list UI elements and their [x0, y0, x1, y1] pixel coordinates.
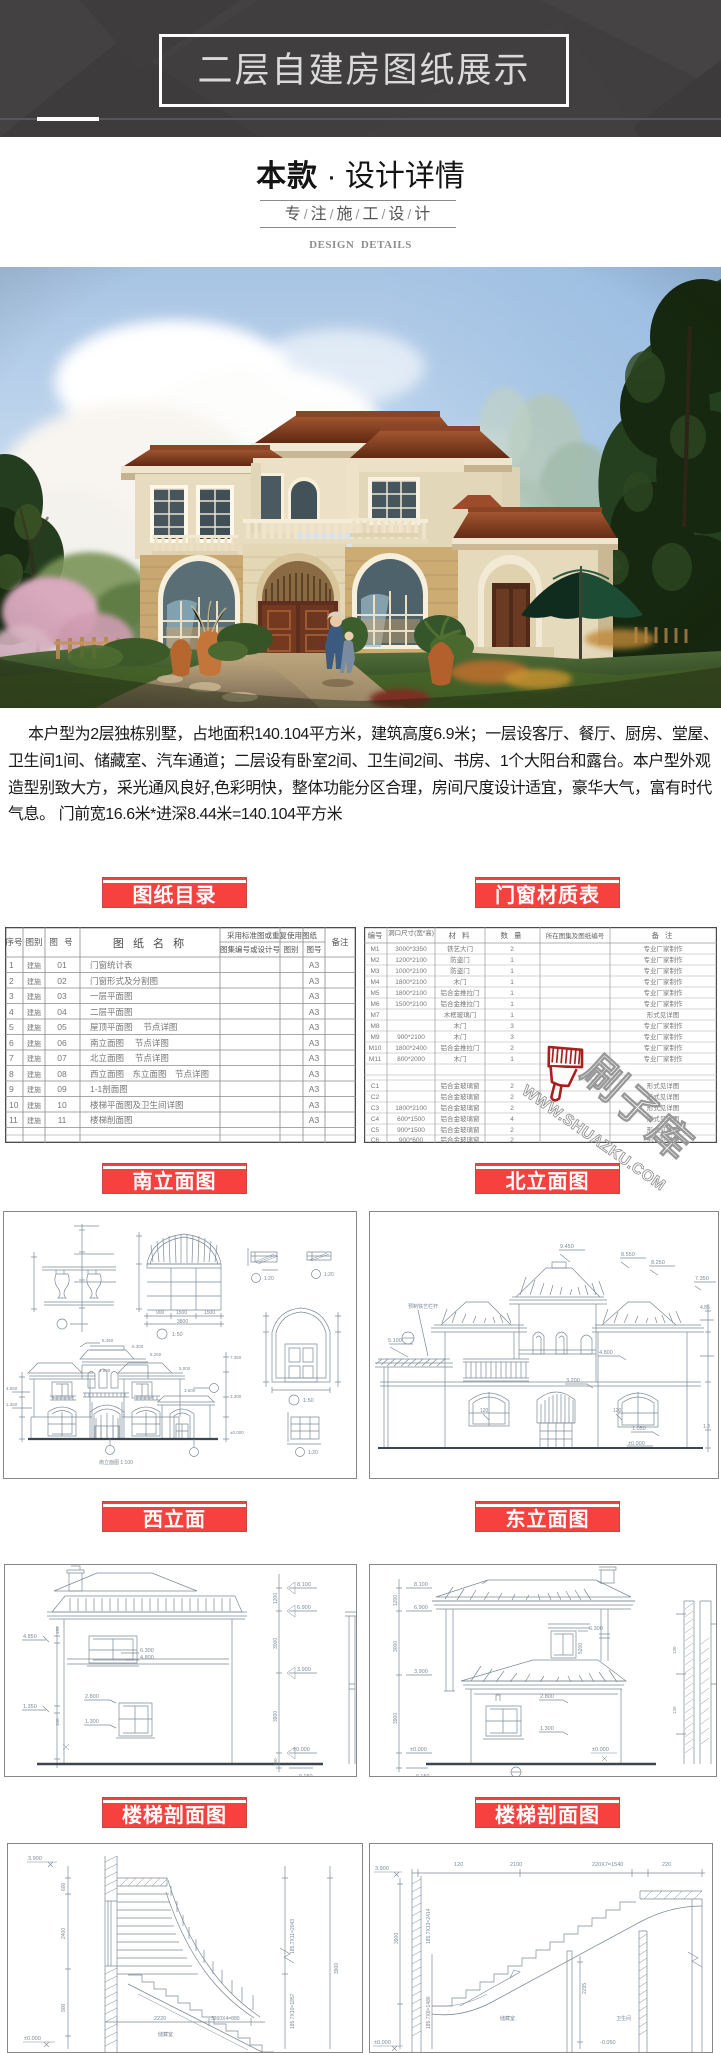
- svg-text:3900: 3900: [334, 1963, 340, 1974]
- svg-text:±0.000: ±0.000: [410, 1747, 427, 1753]
- svg-text:120: 120: [672, 1646, 677, 1654]
- svg-text:3800: 3800: [177, 1319, 188, 1325]
- svg-text:建施: 建施: [27, 1070, 41, 1079]
- svg-text:6: 6: [9, 1038, 14, 1048]
- svg-text:±0.000: ±0.000: [230, 1430, 244, 1435]
- svg-text:铝合金玻璃窗: 铝合金玻璃窗: [441, 1135, 480, 1143]
- svg-text:1500: 1500: [176, 1310, 187, 1316]
- svg-text:专业厂家制作: 专业厂家制作: [644, 966, 684, 975]
- svg-text:120: 120: [454, 1862, 463, 1868]
- svg-text:900: 900: [61, 2003, 67, 2012]
- svg-text:3.600: 3.600: [184, 1388, 196, 1393]
- svg-text:铝合金玻璃窗: 铝合金玻璃窗: [441, 1092, 480, 1101]
- svg-text:1: 1: [510, 1056, 514, 1063]
- svg-text:预制铁艺栏杆: 预制铁艺栏杆: [408, 1303, 438, 1310]
- svg-text:铝合金玻璃窗: 铝合金玻璃窗: [441, 1081, 480, 1090]
- svg-text:1: 1: [510, 979, 514, 986]
- svg-text:西立面图 东立面图 节点详图: 西立面图 东立面图 节点详图: [90, 1069, 209, 1079]
- svg-text:形式见详图: 形式见详图: [647, 1081, 680, 1090]
- svg-text:8.100: 8.100: [414, 1582, 428, 1588]
- svg-text:形式见详图: 形式见详图: [647, 1114, 680, 1123]
- svg-text:02: 02: [57, 976, 67, 986]
- svg-text:A3: A3: [309, 1038, 320, 1048]
- svg-text:600*1500: 600*1500: [397, 1116, 425, 1123]
- svg-text:C1: C1: [371, 1083, 380, 1090]
- svg-text:8: 8: [9, 1069, 14, 1079]
- svg-text:4.850: 4.850: [6, 1386, 18, 1391]
- svg-text:专业厂家制作: 专业厂家制作: [644, 955, 684, 964]
- svg-text:11: 11: [9, 1115, 18, 1125]
- svg-text:1.050: 1.050: [632, 1426, 646, 1432]
- svg-text:7: 7: [9, 1053, 14, 1063]
- svg-text:2: 2: [510, 1127, 514, 1134]
- svg-text:8.100: 8.100: [297, 1582, 311, 1588]
- svg-text:专业厂家制作: 专业厂家制作: [644, 988, 684, 997]
- svg-text:3.200: 3.200: [566, 1378, 580, 1384]
- svg-text:07: 07: [57, 1053, 67, 1063]
- svg-text:铁艺大门: 铁艺大门: [447, 944, 473, 953]
- svg-text:100: 100: [55, 1718, 60, 1726]
- svg-text:2.800: 2.800: [85, 1694, 99, 1700]
- svg-text:8.250: 8.250: [651, 1260, 665, 1266]
- svg-text:1800*2100: 1800*2100: [395, 1105, 427, 1112]
- svg-text:M1: M1: [370, 946, 379, 953]
- svg-text:A3: A3: [309, 991, 320, 1001]
- svg-text:7.350: 7.350: [695, 1276, 709, 1282]
- svg-text:8.550: 8.550: [621, 1252, 635, 1258]
- svg-text:C6: C6: [371, 1137, 380, 1143]
- svg-text:04: 04: [57, 1007, 67, 1017]
- svg-text:-0.050: -0.050: [600, 2040, 616, 2046]
- svg-text:11: 11: [58, 1115, 67, 1125]
- svg-text:专业厂家制作: 专业厂家制作: [644, 999, 684, 1008]
- svg-text:M4: M4: [370, 979, 379, 986]
- svg-text:2: 2: [510, 1105, 514, 1112]
- svg-text:1200: 1200: [273, 1593, 279, 1604]
- svg-text:10: 10: [9, 1100, 19, 1110]
- svg-text:120: 120: [480, 1408, 489, 1414]
- svg-text:1.350: 1.350: [6, 1402, 18, 1407]
- svg-text:A3: A3: [309, 976, 320, 986]
- svg-text:1800*2400: 1800*2400: [395, 1045, 427, 1052]
- svg-text:防盗门: 防盗门: [450, 955, 470, 964]
- svg-text:3.300: 3.300: [230, 1394, 242, 1399]
- svg-text:800*2000: 800*2000: [397, 1056, 425, 1063]
- svg-text:4.800: 4.800: [140, 1655, 154, 1661]
- svg-text:6.450: 6.450: [102, 1338, 114, 1343]
- svg-text:材 料: 材 料: [448, 930, 471, 940]
- svg-text:3.900: 3.900: [297, 1667, 311, 1673]
- svg-text:图别: 图别: [284, 945, 299, 954]
- svg-text:1800*2100: 1800*2100: [395, 979, 427, 986]
- svg-text:二层平面图: 二层平面图: [90, 1007, 133, 1017]
- svg-text:1.300: 1.300: [85, 1719, 99, 1725]
- svg-text:形式见详图: 形式见详图: [647, 1135, 680, 1143]
- svg-text:A3: A3: [309, 1084, 320, 1094]
- svg-text:卫生间: 卫生间: [616, 2015, 631, 2022]
- svg-text:185.7X8=1486: 185.7X8=1486: [426, 1996, 432, 2029]
- svg-text:北立面图 节点详图: 北立面图 节点详图: [90, 1053, 169, 1063]
- svg-text:±0.000: ±0.000: [24, 2036, 41, 2042]
- svg-text:2400: 2400: [61, 1928, 67, 1939]
- svg-text:4.85: 4.85: [700, 1305, 710, 1311]
- svg-text:6.250: 6.250: [150, 1352, 162, 1357]
- svg-text:备 注: 备 注: [651, 930, 674, 940]
- svg-text:3: 3: [9, 991, 14, 1001]
- svg-text:3: 3: [510, 1023, 514, 1030]
- svg-text:1.350: 1.350: [23, 1704, 37, 1710]
- svg-text:建施: 建施: [27, 977, 41, 986]
- svg-text:-0.150: -0.150: [414, 1774, 430, 1776]
- svg-text:图号: 图号: [307, 945, 322, 954]
- svg-text:铝合金玻璃窗: 铝合金玻璃窗: [441, 1114, 480, 1123]
- svg-text:M6: M6: [370, 1001, 379, 1008]
- svg-text:M2: M2: [370, 957, 379, 964]
- svg-text:3900: 3900: [394, 1933, 400, 1944]
- svg-text:5.100: 5.100: [388, 1338, 402, 1344]
- svg-text:2.800: 2.800: [540, 1694, 554, 1700]
- svg-text:专业厂家制作: 专业厂家制作: [644, 1043, 684, 1052]
- svg-text:建施: 建施: [27, 1023, 41, 1032]
- svg-text:1.300: 1.300: [540, 1726, 554, 1732]
- svg-text:900*1500: 900*1500: [397, 1127, 425, 1134]
- svg-text:建施: 建施: [27, 1101, 41, 1110]
- svg-text:1-1剖面图: 1-1剖面图: [90, 1084, 128, 1094]
- svg-text:10: 10: [57, 1100, 67, 1110]
- svg-text:5200: 5200: [578, 1643, 584, 1654]
- svg-text:9.450: 9.450: [560, 1244, 574, 1250]
- svg-text:洞口尺寸(宽*高): 洞口尺寸(宽*高): [388, 928, 434, 937]
- svg-text:03: 03: [57, 991, 67, 1001]
- svg-text:4: 4: [9, 1007, 14, 1017]
- svg-text:6.300: 6.300: [132, 1344, 144, 1349]
- svg-text:1: 1: [510, 1001, 514, 1008]
- svg-text:1:20: 1:20: [308, 1450, 318, 1456]
- svg-text:屋顶平面图 节点详图: 屋顶平面图 节点详图: [90, 1022, 177, 1032]
- svg-text:木门: 木门: [454, 977, 467, 986]
- svg-text:建施: 建施: [27, 1054, 41, 1063]
- svg-text:1:50: 1:50: [172, 1332, 183, 1338]
- svg-text:4.800: 4.800: [599, 1350, 613, 1356]
- svg-text:150: 150: [55, 1626, 60, 1634]
- svg-text:2: 2: [510, 1137, 514, 1143]
- svg-text:铝合金推拉门: 铝合金推拉门: [441, 1043, 480, 1052]
- svg-text:1200: 1200: [393, 1595, 399, 1606]
- svg-text:铝合金玻璃窗: 铝合金玻璃窗: [441, 1125, 480, 1134]
- svg-text:M7: M7: [370, 1012, 379, 1019]
- svg-text:±0.000: ±0.000: [293, 1747, 310, 1753]
- svg-text:2: 2: [510, 946, 514, 953]
- svg-text:楼梯平面图及卫生间详图: 楼梯平面图及卫生间详图: [90, 1100, 184, 1110]
- svg-text:储藏室: 储藏室: [500, 2015, 515, 2022]
- svg-text:南立面图 1:100: 南立面图 1:100: [99, 1459, 133, 1466]
- svg-text:序号: 序号: [5, 937, 22, 947]
- svg-text:A3: A3: [309, 1053, 320, 1063]
- svg-text:建施: 建施: [27, 1039, 41, 1048]
- svg-text:A3: A3: [309, 1115, 320, 1125]
- svg-text:1: 1: [510, 968, 514, 975]
- svg-text:M8: M8: [370, 1023, 379, 1030]
- svg-text:1200*2100: 1200*2100: [395, 957, 427, 964]
- svg-text:1: 1: [510, 1012, 514, 1019]
- svg-text:数 量: 数 量: [500, 930, 523, 940]
- svg-text:储藏室: 储藏室: [158, 2031, 173, 2038]
- svg-text:M5: M5: [370, 990, 379, 997]
- svg-text:1000*2100: 1000*2100: [395, 968, 427, 975]
- svg-text:建施: 建施: [27, 1116, 41, 1125]
- svg-text:南立面图 节点详图: 南立面图 节点详图: [90, 1038, 169, 1048]
- svg-text:1.3: 1.3: [703, 1424, 710, 1430]
- svg-text:1:50: 1:50: [303, 1398, 314, 1404]
- svg-text:C5: C5: [371, 1127, 380, 1134]
- svg-text:±0.000: ±0.000: [592, 1747, 609, 1753]
- svg-text:防盗门: 防盗门: [450, 966, 470, 975]
- svg-text:建施: 建施: [27, 992, 41, 1001]
- svg-text:1:20: 1:20: [324, 1272, 334, 1278]
- svg-text:3000*3350: 3000*3350: [395, 946, 427, 953]
- svg-text:编号: 编号: [368, 930, 383, 940]
- svg-text:7.350: 7.350: [230, 1355, 242, 1360]
- svg-text:3900: 3900: [273, 1711, 279, 1722]
- svg-text:专业厂家制作: 专业厂家制作: [644, 1054, 684, 1063]
- svg-text:900*600: 900*600: [399, 1137, 424, 1143]
- svg-text:6.300: 6.300: [140, 1648, 154, 1654]
- svg-text:图 号: 图 号: [49, 937, 74, 947]
- svg-text:所在图集及图纸编号: 所在图集及图纸编号: [546, 931, 605, 940]
- svg-text:-0.150: -0.150: [297, 1774, 313, 1776]
- svg-text:图集编号或设计号: 图集编号或设计号: [220, 944, 280, 954]
- svg-text:木门: 木门: [454, 1054, 467, 1063]
- svg-text:形式见详图: 形式见详图: [647, 1010, 680, 1019]
- svg-text:A3: A3: [309, 1069, 320, 1079]
- svg-text:形式见详图: 形式见详图: [647, 1092, 680, 1101]
- svg-text:185.7X10=1857: 185.7X10=1857: [290, 1993, 296, 2029]
- svg-text:08: 08: [57, 1069, 67, 1079]
- svg-text:120: 120: [672, 1706, 677, 1714]
- svg-text:220X7=1540: 220X7=1540: [592, 1862, 623, 1868]
- svg-text:形式见详图: 形式见详图: [647, 1125, 680, 1134]
- svg-text:形式见详图: 形式见详图: [647, 1103, 680, 1112]
- svg-text:3: 3: [510, 1034, 514, 1041]
- svg-text:1500: 1500: [204, 1310, 215, 1316]
- svg-text:M3: M3: [370, 968, 379, 975]
- svg-text:木门: 木门: [454, 1032, 467, 1041]
- svg-text:采用标准图或重复使用图纸: 采用标准图或重复使用图纸: [227, 930, 317, 940]
- svg-text:木框玻璃门: 木框玻璃门: [444, 1010, 477, 1019]
- svg-text:1: 1: [510, 990, 514, 997]
- svg-text:C3: C3: [371, 1105, 380, 1112]
- svg-text:1:20: 1:20: [264, 1276, 274, 1282]
- svg-text:一层平面图: 一层平面图: [90, 991, 133, 1001]
- svg-text:05: 05: [57, 1022, 67, 1032]
- svg-text:9: 9: [9, 1084, 14, 1094]
- svg-text:5: 5: [9, 1022, 14, 1032]
- svg-text:C4: C4: [371, 1116, 380, 1123]
- svg-text:±0.000: ±0.000: [374, 2040, 391, 2046]
- svg-text:2: 2: [510, 1094, 514, 1101]
- svg-text:2: 2: [9, 976, 14, 986]
- svg-text:3000: 3000: [393, 1641, 399, 1652]
- svg-text:4.850: 4.850: [23, 1634, 37, 1640]
- svg-text:1500*2100: 1500*2100: [395, 1001, 427, 1008]
- svg-text:1: 1: [9, 960, 14, 970]
- svg-text:4: 4: [510, 1116, 514, 1123]
- svg-text:5.000: 5.000: [179, 1366, 191, 1371]
- svg-text:建施: 建施: [27, 961, 41, 970]
- svg-text:专业厂家制作: 专业厂家制作: [644, 944, 684, 953]
- svg-text:150: 150: [273, 1758, 278, 1766]
- svg-text:木门: 木门: [454, 1021, 467, 1030]
- svg-text:3000: 3000: [273, 1638, 279, 1649]
- svg-text:备注: 备注: [331, 937, 349, 947]
- svg-text:4.500: 4.500: [99, 1368, 111, 1373]
- svg-text:600: 600: [61, 1882, 67, 1891]
- svg-text:1800*2100: 1800*2100: [395, 990, 427, 997]
- svg-text:1: 1: [510, 957, 514, 964]
- svg-text:185.7X11=2043: 185.7X11=2043: [290, 1919, 296, 1954]
- svg-text:专业厂家制作: 专业厂家制作: [644, 1032, 684, 1041]
- svg-text:185.7X13=2414: 185.7X13=2414: [426, 1908, 432, 1944]
- svg-text:专业厂家制作: 专业厂家制作: [644, 977, 684, 986]
- svg-text:门窗统计表: 门窗统计表: [90, 960, 133, 970]
- svg-text:3900: 3900: [393, 1713, 399, 1724]
- svg-text:铝合金推拉门: 铝合金推拉门: [441, 988, 480, 997]
- svg-text:门窗形式及分割图: 门窗形式及分割图: [90, 976, 158, 986]
- svg-text:3.900: 3.900: [375, 1866, 389, 1872]
- svg-text:6.900: 6.900: [297, 1605, 311, 1611]
- svg-text:图 纸 名 称: 图 纸 名 称: [113, 936, 187, 950]
- svg-text:3.900: 3.900: [28, 1856, 42, 1862]
- svg-text:120: 120: [613, 1408, 622, 1414]
- svg-text:3200X4=880: 3200X4=880: [211, 2016, 240, 2022]
- svg-text:铝合金推拉门: 铝合金推拉门: [441, 999, 480, 1008]
- svg-text:2100: 2100: [510, 1862, 522, 1868]
- svg-text:3.900: 3.900: [414, 1669, 428, 1675]
- svg-text:楼梯削面图: 楼梯削面图: [90, 1115, 133, 1125]
- svg-text:2220: 2220: [154, 2016, 166, 2022]
- svg-text:A3: A3: [309, 960, 320, 970]
- svg-text:2: 2: [510, 1045, 514, 1052]
- svg-text:2295: 2295: [582, 1983, 588, 1994]
- svg-text:M11: M11: [369, 1056, 382, 1063]
- svg-text:M10: M10: [369, 1045, 382, 1052]
- svg-text:C2: C2: [371, 1094, 380, 1101]
- svg-text:220: 220: [662, 1862, 671, 1868]
- svg-text:2: 2: [510, 1083, 514, 1090]
- svg-text:09: 09: [57, 1084, 67, 1094]
- svg-text:900*2100: 900*2100: [397, 1034, 425, 1041]
- svg-text:A3: A3: [309, 1022, 320, 1032]
- svg-text:图别: 图别: [25, 937, 42, 947]
- svg-text:M9: M9: [370, 1034, 379, 1041]
- svg-text:建施: 建施: [27, 1008, 41, 1017]
- svg-text:A3: A3: [309, 1100, 320, 1110]
- svg-text:06: 06: [57, 1038, 67, 1048]
- svg-text:A3: A3: [309, 1007, 320, 1017]
- svg-text:铝合金玻璃窗: 铝合金玻璃窗: [441, 1103, 480, 1112]
- svg-text:900: 900: [156, 1310, 165, 1316]
- svg-text:6.900: 6.900: [414, 1605, 428, 1611]
- svg-text:建施: 建施: [27, 1085, 41, 1094]
- svg-text:专业厂家制作: 专业厂家制作: [644, 1021, 684, 1030]
- svg-text:01: 01: [57, 960, 67, 970]
